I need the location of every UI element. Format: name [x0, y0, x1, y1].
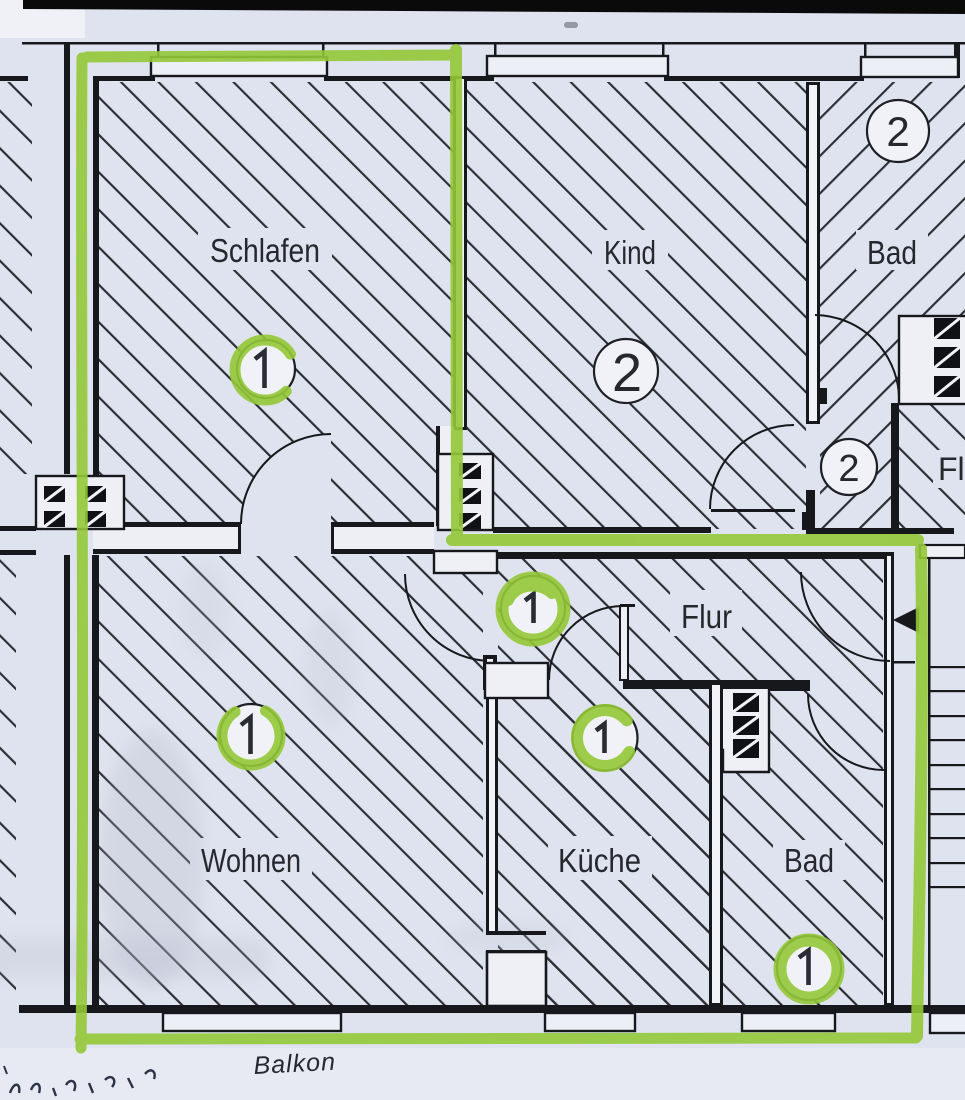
- svg-text:Fl: Fl: [938, 451, 965, 487]
- svg-text:2: 2: [886, 108, 909, 155]
- svg-text:Flur: Flur: [681, 598, 732, 635]
- svg-text:Küche: Küche: [558, 842, 641, 879]
- svg-text:Balkon: Balkon: [253, 1048, 337, 1080]
- svg-text:2: 2: [838, 448, 859, 490]
- svg-text:Wohnen: Wohnen: [201, 842, 301, 879]
- svg-text:2: 2: [612, 343, 642, 403]
- svg-text:Bad: Bad: [784, 842, 834, 879]
- svg-text:Bad: Bad: [867, 234, 917, 271]
- svg-text:Schlafen: Schlafen: [210, 232, 320, 269]
- svg-text:Kind: Kind: [604, 234, 656, 271]
